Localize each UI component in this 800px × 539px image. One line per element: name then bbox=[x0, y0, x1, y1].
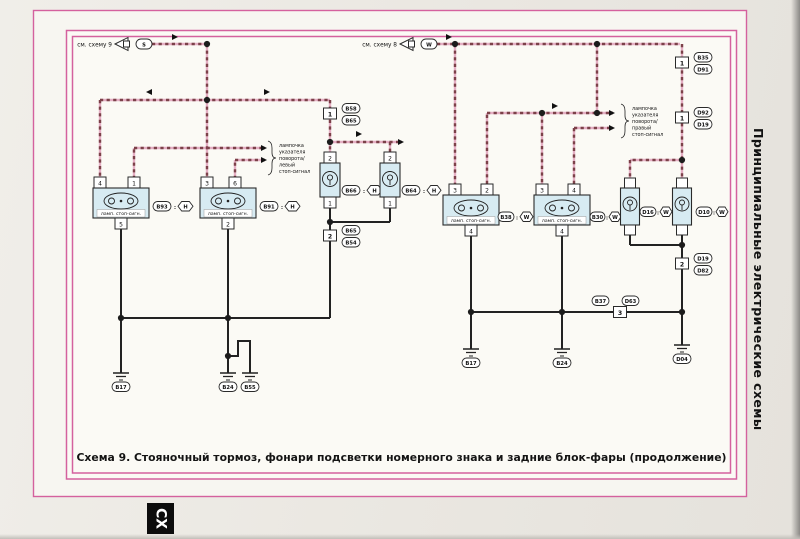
separator: : bbox=[423, 189, 425, 195]
note-line: указателя bbox=[279, 150, 305, 156]
separator: : bbox=[281, 205, 283, 211]
separator: : bbox=[657, 210, 659, 216]
separator: : bbox=[174, 205, 176, 211]
ref-left-wire-code: S bbox=[142, 42, 146, 48]
lamp-code: B66 bbox=[345, 189, 357, 195]
scanned-manual-page: см. схему 9 S см. схему 8 W 1 B58 B65 2 bbox=[0, 0, 800, 539]
connector-number: 1 bbox=[680, 115, 684, 122]
connector-code: B35 bbox=[697, 56, 709, 62]
wire-color-code: H bbox=[372, 189, 376, 195]
lamp-code: B30 bbox=[592, 215, 604, 221]
lamp-label: ламп. стоп-сигн. bbox=[451, 219, 491, 224]
ref-left-label: см. схему 9 bbox=[77, 43, 112, 49]
pin-number: 2 bbox=[226, 221, 230, 228]
pin-number: 5 bbox=[119, 221, 123, 228]
lamp-label: ламп. стоп-сигн. bbox=[101, 212, 141, 217]
pin-number: 2 bbox=[485, 187, 489, 194]
pin-number: 2 bbox=[328, 155, 332, 162]
lamp-code: D10 bbox=[698, 210, 710, 216]
wire-color-code: H bbox=[432, 189, 436, 195]
chapter-sidebar-title: Принципиальные электрические схемы bbox=[751, 128, 766, 431]
wire-color-code: H bbox=[290, 205, 294, 211]
ground-code: D04 bbox=[676, 357, 688, 363]
ref-right-wire-code: W bbox=[426, 42, 432, 48]
connector-code: D63 bbox=[625, 299, 637, 305]
ground-code: B24 bbox=[222, 385, 234, 391]
note-line: поворота/ bbox=[632, 119, 658, 125]
pin-number: 3 bbox=[453, 187, 457, 194]
connector-code: B65 bbox=[345, 229, 357, 235]
note-line: указателя bbox=[632, 113, 658, 119]
lamp-code: D16 bbox=[642, 210, 654, 216]
ground-code: B17 bbox=[465, 361, 477, 367]
wire-color-code: W bbox=[663, 210, 669, 216]
lamp-code: B91 bbox=[263, 205, 275, 211]
ground-code: B17 bbox=[115, 385, 127, 391]
connector-number: 2 bbox=[328, 233, 332, 240]
separator: : bbox=[363, 189, 365, 195]
lamp-label: ламп. стоп-сигн. bbox=[542, 219, 582, 224]
connector-number: 1 bbox=[680, 60, 684, 67]
pin-number: 4 bbox=[469, 228, 473, 235]
ref-square-icon bbox=[124, 41, 130, 47]
connector-code: B65 bbox=[345, 119, 357, 125]
note-line: поворота/ bbox=[279, 156, 305, 162]
wire-color-code: H bbox=[183, 205, 187, 211]
connector-code: B54 bbox=[345, 241, 357, 247]
connector-code: D19 bbox=[697, 123, 709, 129]
pin-number: 1 bbox=[328, 200, 332, 207]
pin-number: 4 bbox=[560, 228, 564, 235]
connector-code: D82 bbox=[697, 269, 709, 275]
separator: : bbox=[516, 215, 518, 221]
pin-number: 4 bbox=[572, 187, 576, 194]
connector-number: 3 bbox=[618, 310, 622, 317]
connector-code: B58 bbox=[345, 107, 357, 113]
wire-color-code: W bbox=[524, 215, 530, 221]
lamp-label: ламп. стоп-сигн. bbox=[208, 212, 248, 217]
connector-code: B37 bbox=[595, 299, 607, 305]
pin-number: 1 bbox=[132, 180, 136, 187]
separator: : bbox=[606, 215, 608, 221]
pin-number: 1 bbox=[388, 200, 392, 207]
connector-code: D91 bbox=[697, 68, 709, 74]
ground-code: B24 bbox=[556, 361, 568, 367]
ref-right-label: см. схему 8 bbox=[362, 43, 397, 49]
scan-edge-right bbox=[791, 0, 800, 539]
connector-code: D19 bbox=[697, 257, 709, 263]
section-tab: СХ bbox=[147, 503, 174, 534]
note-line: левый bbox=[279, 162, 295, 169]
separator: : bbox=[713, 210, 715, 216]
wire-color-code: W bbox=[719, 210, 725, 216]
pin-number: 6 bbox=[233, 180, 237, 187]
ground-code: B55 bbox=[244, 385, 256, 391]
note-line: лампочка bbox=[279, 143, 304, 149]
note-line: стоп-сигнал bbox=[632, 132, 663, 138]
lamp-code: B93 bbox=[156, 205, 168, 211]
scan-edge-bottom bbox=[0, 534, 800, 539]
pin-number: 3 bbox=[540, 187, 544, 194]
connector-code: D92 bbox=[697, 111, 709, 117]
wire-color-code: W bbox=[612, 215, 618, 221]
pin-number: 3 bbox=[205, 180, 209, 187]
ref-square-icon bbox=[409, 41, 415, 47]
note-line: лампочка bbox=[632, 106, 657, 112]
pin-number: 2 bbox=[388, 155, 392, 162]
lamp-code: B38 bbox=[500, 215, 512, 221]
figure-caption: Схема 9. Стояночный тормоз, фонари подсв… bbox=[66, 451, 737, 464]
connector-number: 1 bbox=[328, 111, 332, 118]
pin-number: 4 bbox=[98, 180, 102, 187]
lamp-code: B64 bbox=[405, 189, 417, 195]
note-line: стоп-сигнал bbox=[279, 169, 310, 175]
connector-number: 2 bbox=[680, 261, 684, 268]
note-line: правый bbox=[632, 125, 651, 132]
diagram-panel bbox=[66, 30, 737, 479]
